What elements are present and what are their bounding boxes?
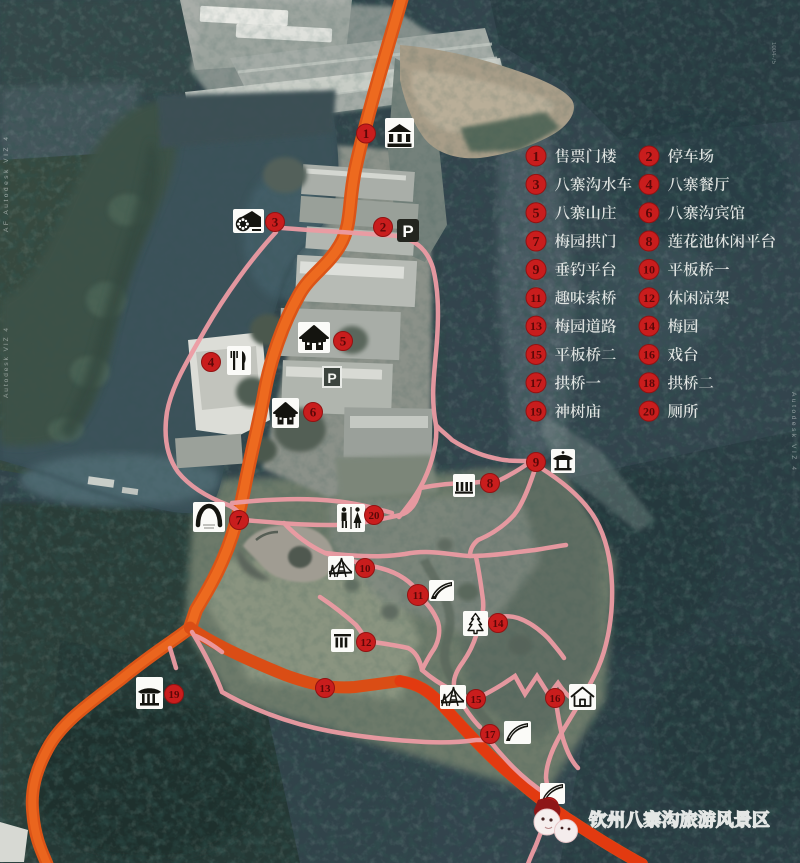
svg-text:10: 10 [360,563,372,575]
svg-text:13: 13 [530,319,542,333]
svg-text:15: 15 [530,348,542,362]
svg-text:P: P [402,222,413,241]
svg-text:1004-75: 1004-75 [770,42,776,65]
svg-text:15: 15 [471,694,483,706]
svg-text:8: 8 [487,475,494,490]
svg-text:4: 4 [646,178,653,193]
svg-text:20: 20 [643,404,655,418]
svg-text:18: 18 [643,376,655,390]
svg-text:1: 1 [533,150,540,165]
svg-text:6: 6 [646,207,653,222]
svg-text:16: 16 [643,348,655,362]
svg-text:17: 17 [530,376,542,390]
svg-text:14: 14 [643,319,655,333]
svg-text:11: 11 [530,291,541,305]
svg-text:9: 9 [533,263,540,278]
svg-text:9: 9 [533,454,540,469]
svg-text:14: 14 [493,618,505,630]
svg-text:19: 19 [530,404,542,418]
svg-text:7: 7 [533,235,540,250]
svg-text:2: 2 [380,219,387,234]
svg-text:8: 8 [646,235,653,250]
svg-text:5: 5 [340,333,347,348]
svg-text:13: 13 [320,683,332,695]
svg-text:20: 20 [369,510,381,522]
svg-text:4: 4 [208,354,215,369]
svg-text:11: 11 [413,590,423,602]
svg-text:17: 17 [485,729,497,741]
svg-text:AF Autodesk VIZ 4: AF Autodesk VIZ 4 [3,137,10,232]
svg-text:10: 10 [643,263,655,277]
svg-text:1: 1 [363,126,370,141]
svg-text:P: P [327,370,336,386]
svg-text:19: 19 [169,689,181,701]
svg-text:6: 6 [310,404,317,419]
svg-text:16: 16 [550,693,562,705]
svg-text:3: 3 [533,178,540,193]
svg-text:5: 5 [533,207,540,222]
svg-text:12: 12 [643,291,655,305]
svg-text:12: 12 [361,637,373,649]
svg-text:2: 2 [646,150,653,165]
svg-text:3: 3 [272,214,279,229]
svg-text:7: 7 [236,512,243,527]
